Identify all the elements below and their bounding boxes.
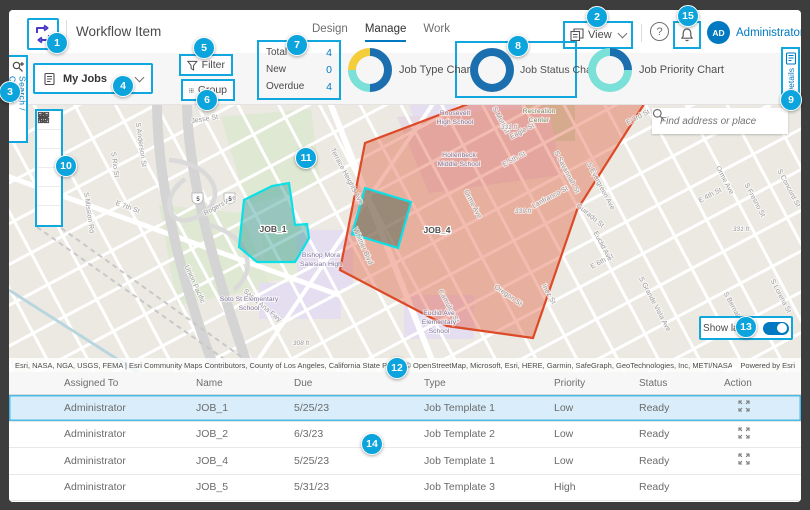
map-label: Roosevelt — [440, 110, 470, 117]
map-search-input[interactable] — [652, 116, 764, 127]
table-cell: JOB_5 — [196, 481, 294, 493]
table-cell: Low — [554, 428, 639, 440]
table-cell: JOB_4 — [196, 455, 294, 467]
map-label: 339 ft — [515, 208, 532, 215]
callout-1: 1 — [46, 32, 68, 54]
search-plus-icon — [12, 61, 24, 73]
table-cell: Administrator — [64, 402, 196, 414]
callout-6: 6 — [196, 89, 218, 111]
table-cell: High — [554, 481, 639, 493]
avatar[interactable]: AD — [707, 21, 730, 44]
table-cell: 6/3/23 — [294, 428, 424, 440]
callout-15: 15 — [677, 5, 699, 27]
job-priority-chart-label: Job Priority Chart — [639, 64, 724, 76]
col-assigned-to: Assigned To — [64, 378, 196, 389]
callout-3: 3 — [0, 81, 21, 103]
map-label: Hollenbeck — [442, 152, 476, 159]
attribution-text: Esri, NASA, NGA, USGS, FEMA | Esri Commu… — [15, 361, 732, 370]
col-name: Name — [196, 378, 294, 389]
map-label: Middle School — [438, 161, 481, 168]
action-cell — [724, 427, 801, 442]
callout-8: 8 — [507, 35, 529, 57]
tab-work[interactable]: Work — [423, 23, 450, 35]
table-body: AdministratorJOB_15/25/23Job Template 1L… — [9, 395, 801, 501]
table-cell: 5/25/23 — [294, 455, 424, 467]
map-search-box — [652, 108, 788, 134]
map-label: Bishop Mora — [302, 252, 340, 259]
map-label: Center — [529, 117, 550, 124]
stat-value: 4 — [326, 81, 332, 93]
table-cell: Ready — [639, 428, 724, 440]
map-label: 308 ft — [293, 340, 310, 347]
map-label: School — [239, 305, 260, 312]
header-divider-2 — [641, 24, 642, 42]
table-row[interactable]: AdministratorJOB_45/25/23Job Template 1L… — [9, 448, 801, 475]
chevron-down-icon — [618, 29, 628, 39]
table-row[interactable]: AdministratorJOB_26/3/23Job Template 2Lo… — [9, 422, 801, 449]
stat-overdue: Overdue4 — [266, 81, 332, 93]
map-canvas[interactable]: JOB_1 JOB_4 Jesse StS Anderson StS Rio S… — [9, 105, 801, 372]
page-title: Workflow Item — [76, 24, 161, 39]
help-button[interactable]: ? — [650, 22, 669, 41]
col-type: Type — [424, 378, 554, 389]
stat-label: Overdue — [266, 81, 304, 93]
map-label: Euclid Ave — [423, 310, 455, 317]
job-status-chart[interactable] — [470, 48, 514, 92]
table-cell: Job Template 1 — [424, 402, 554, 414]
callout-13: 13 — [735, 316, 757, 338]
job-type-chart-label: Job Type Chart — [399, 64, 473, 76]
callout-2: 2 — [586, 6, 608, 28]
jobs-list-icon — [43, 72, 57, 86]
layers-button[interactable] — [37, 187, 61, 206]
job-status-chart-label: Job Status Chart — [520, 64, 598, 76]
tab-manage[interactable]: Manage — [365, 23, 407, 35]
map-label: High School — [437, 119, 474, 126]
details-icon — [785, 52, 797, 65]
job-4-label: JOB_4 — [424, 225, 451, 235]
col-due: Due — [294, 378, 424, 389]
zoom-to-icon[interactable] — [738, 400, 750, 412]
help-glyph: ? — [656, 26, 662, 38]
callout-14: 14 — [361, 433, 383, 455]
show-labels-toggle[interactable] — [763, 322, 789, 335]
powered-by-esri: Powered by Esri — [740, 361, 795, 370]
table-row[interactable]: AdministratorJOB_55/31/23Job Template 3H… — [9, 475, 801, 502]
callout-5: 5 — [193, 37, 215, 59]
group-grid-icon — [189, 85, 194, 96]
callout-10: 10 — [55, 155, 77, 177]
map-container: JOB_1 JOB_4 Jesse StS Anderson StS Rio S… — [9, 105, 801, 372]
table-cell: 5/25/23 — [294, 402, 424, 414]
table-cell: JOB_1 — [196, 402, 294, 414]
bell-icon — [679, 27, 695, 43]
map-label: School — [429, 328, 450, 335]
job-priority-chart[interactable] — [588, 48, 632, 92]
stat-label: New — [266, 64, 286, 76]
view-layers-icon — [570, 28, 584, 42]
user-name[interactable]: Administrator — [736, 27, 801, 39]
col-priority: Priority — [554, 378, 639, 389]
jobs-table: Assigned To Name Due Type Priority Statu… — [9, 372, 801, 502]
map-label: Soto St Elementary — [220, 296, 279, 303]
filter-funnel-icon — [187, 60, 198, 71]
tab-design[interactable]: Design — [312, 23, 348, 35]
zoom-to-icon[interactable] — [738, 427, 750, 439]
map-label: 331 ft — [733, 226, 750, 233]
table-cell: Low — [554, 455, 639, 467]
table-cell: Ready — [639, 481, 724, 493]
jobs-dropdown[interactable]: My Jobs — [33, 63, 153, 94]
table-cell: Job Template 3 — [424, 481, 554, 493]
stat-value: 4 — [326, 47, 332, 59]
table-cell: 5/31/23 — [294, 481, 424, 493]
action-cell — [724, 400, 801, 415]
job-type-chart[interactable] — [348, 48, 392, 92]
callout-11: 11 — [295, 147, 317, 169]
table-cell: JOB_2 — [196, 428, 294, 440]
legend-button[interactable] — [37, 206, 61, 225]
job-1-label: JOB_1 — [260, 224, 287, 234]
table-cell: Administrator — [64, 455, 196, 467]
action-cell — [724, 453, 801, 468]
avatar-initials: AD — [712, 28, 724, 38]
filter-label: Filter — [202, 59, 225, 71]
callout-4: 4 — [112, 75, 134, 97]
col-action: Action — [724, 378, 801, 389]
table-cell: Ready — [639, 402, 724, 414]
table-cell: Low — [554, 402, 639, 414]
table-cell: Administrator — [64, 428, 196, 440]
map-label: Elementary — [422, 319, 457, 326]
table-cell: Job Template 1 — [424, 455, 554, 467]
zoom-out-button[interactable] — [37, 130, 61, 149]
table-cell: Administrator — [64, 481, 196, 493]
col-status: Status — [639, 378, 724, 389]
callout-12: 12 — [386, 357, 408, 379]
table-row[interactable]: AdministratorJOB_15/25/23Job Template 1L… — [9, 395, 801, 422]
stat-value: 0 — [326, 64, 332, 76]
table-cell: Ready — [639, 455, 724, 467]
map-label: Recreation — [523, 108, 556, 115]
callout-7: 7 — [286, 34, 308, 56]
chevron-down-icon — [135, 72, 145, 82]
map-label: Salesian High — [300, 261, 342, 268]
map-label: 331 ft — [501, 124, 518, 131]
list-icon — [37, 111, 50, 124]
callout-9: 9 — [780, 89, 802, 111]
window-frame: Workflow Item Design Manage Work View ? — [0, 0, 810, 510]
table-cell: Job Template 2 — [424, 428, 554, 440]
stat-new: New0 — [266, 64, 332, 76]
view-label: View — [588, 29, 612, 41]
nav-tabs: Design Manage Work — [312, 23, 450, 35]
zoom-to-icon[interactable] — [738, 453, 750, 465]
stat-label: Total — [266, 47, 287, 59]
